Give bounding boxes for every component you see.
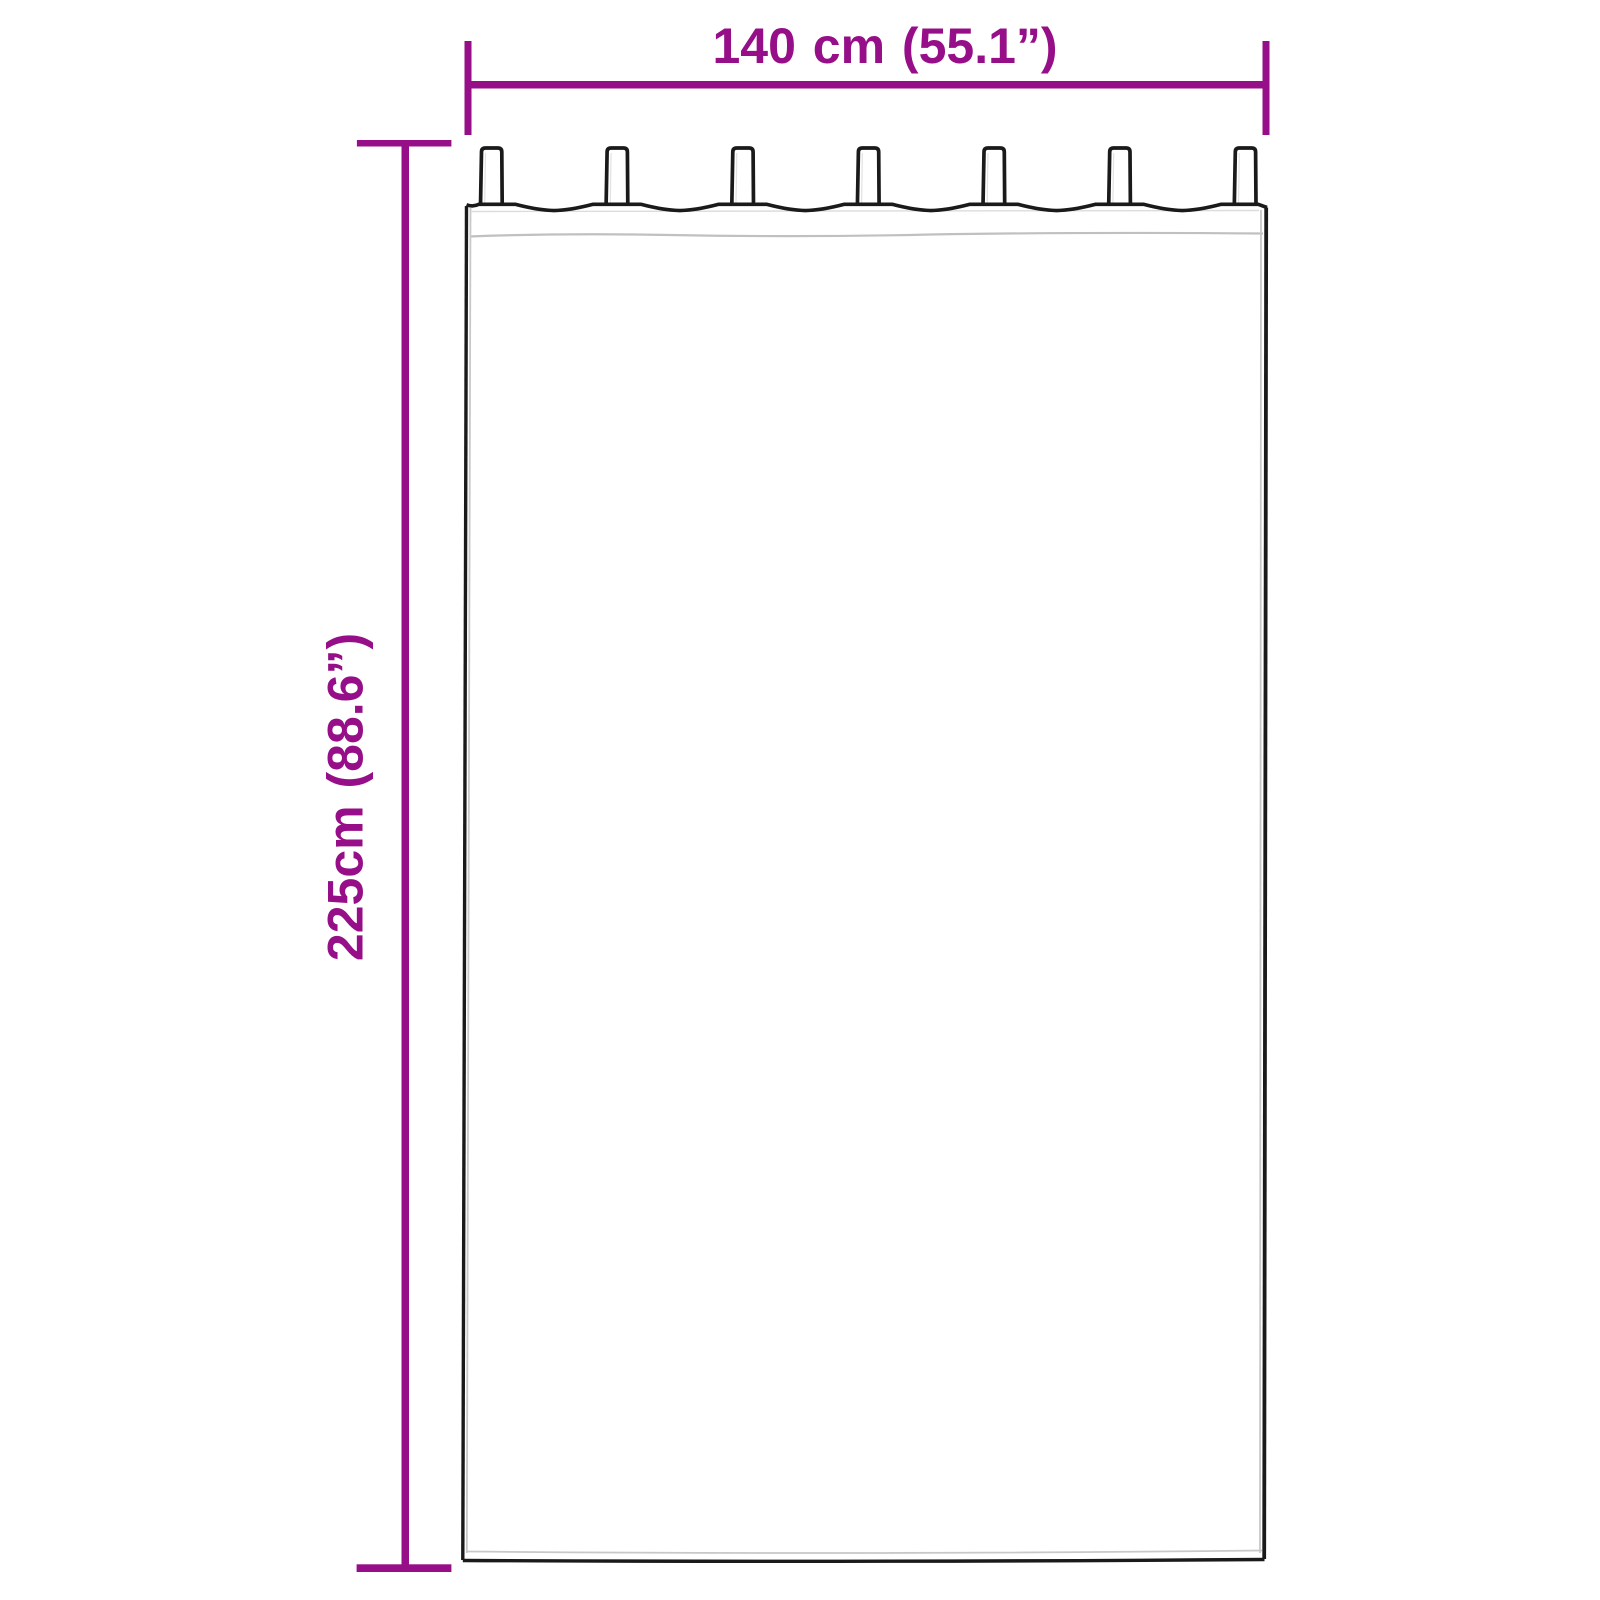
svg-text:140 cm (55.1”): 140 cm (55.1”) (712, 18, 1057, 74)
svg-text:225cm (88.6”): 225cm (88.6”) (318, 633, 374, 961)
